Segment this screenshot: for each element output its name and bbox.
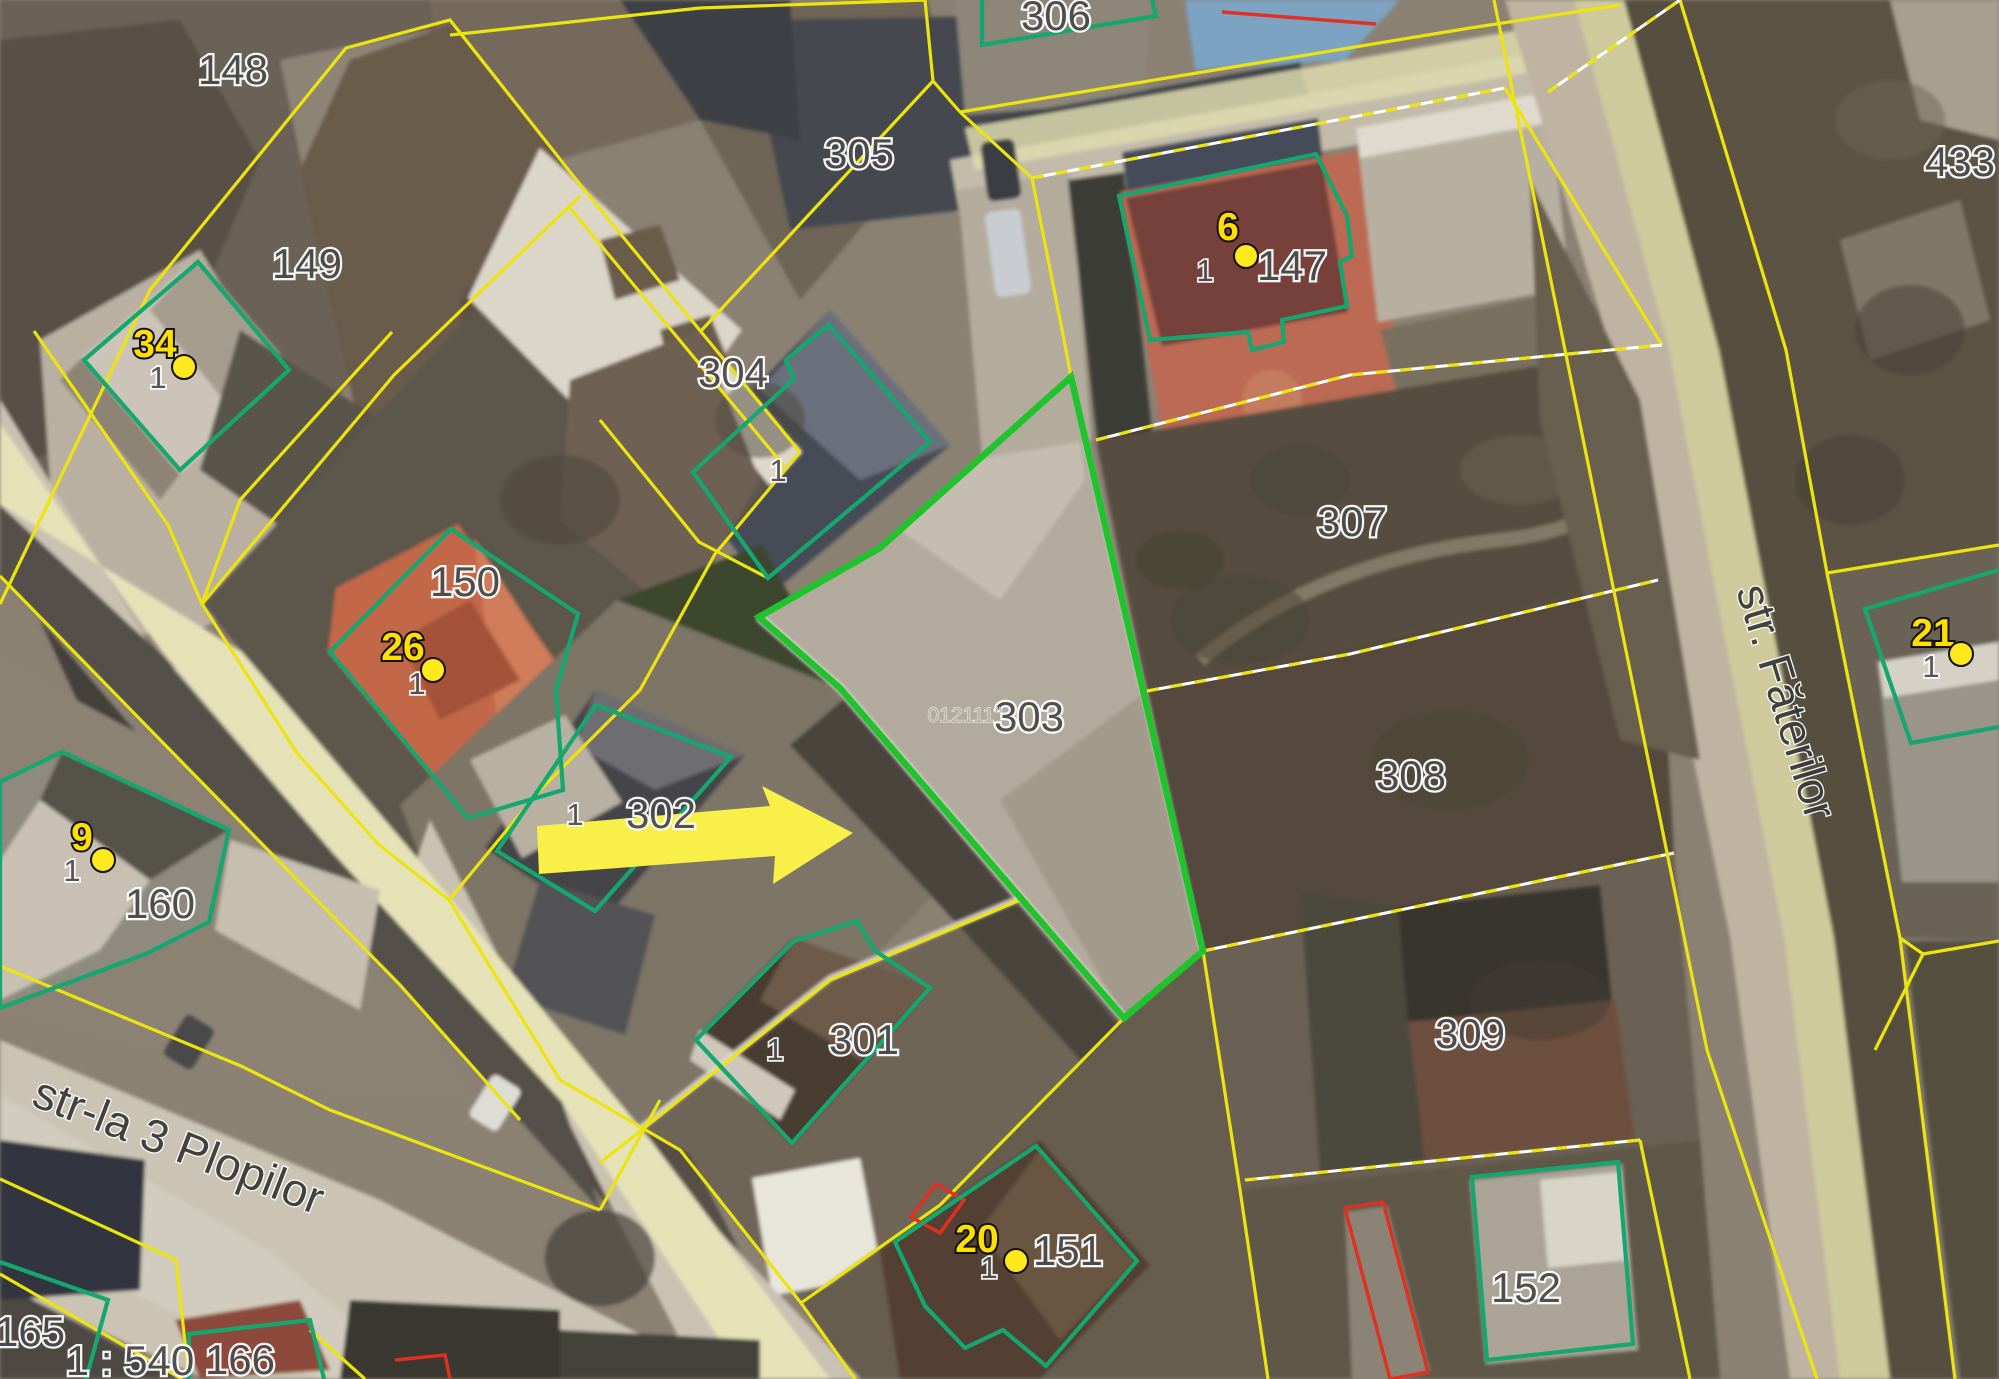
svg-text:147: 147 xyxy=(1257,242,1327,289)
svg-text:21: 21 xyxy=(1911,612,1954,655)
svg-text:1: 1 xyxy=(1196,253,1213,288)
svg-text:012111'': 012111'' xyxy=(928,704,1003,727)
svg-text:1: 1 xyxy=(766,1032,783,1067)
svg-text:165: 165 xyxy=(0,1308,65,1355)
svg-text:305: 305 xyxy=(824,130,894,177)
svg-text:1 : 540: 1 : 540 xyxy=(66,1337,194,1379)
svg-text:308: 308 xyxy=(1376,752,1446,799)
svg-text:309: 309 xyxy=(1435,1010,1505,1057)
svg-text:1: 1 xyxy=(566,797,583,832)
svg-text:6: 6 xyxy=(1217,206,1239,249)
svg-text:148: 148 xyxy=(198,46,268,93)
svg-text:149: 149 xyxy=(272,240,342,287)
svg-text:9: 9 xyxy=(71,816,93,859)
svg-text:301: 301 xyxy=(829,1016,899,1063)
svg-text:303: 303 xyxy=(994,693,1064,740)
svg-text:151: 151 xyxy=(1033,1227,1103,1274)
svg-text:160: 160 xyxy=(125,880,195,927)
svg-text:26: 26 xyxy=(381,626,424,669)
svg-text:302: 302 xyxy=(626,790,696,837)
svg-text:166: 166 xyxy=(205,1336,275,1379)
svg-text:20: 20 xyxy=(955,1218,998,1261)
svg-text:304: 304 xyxy=(698,349,768,396)
svg-text:150: 150 xyxy=(430,558,500,605)
svg-text:1: 1 xyxy=(769,453,786,488)
svg-text:306: 306 xyxy=(1021,0,1091,39)
svg-text:433: 433 xyxy=(1925,138,1995,185)
svg-text:34: 34 xyxy=(133,323,177,366)
svg-text:152: 152 xyxy=(1491,1264,1561,1311)
svg-text:307: 307 xyxy=(1317,498,1387,545)
